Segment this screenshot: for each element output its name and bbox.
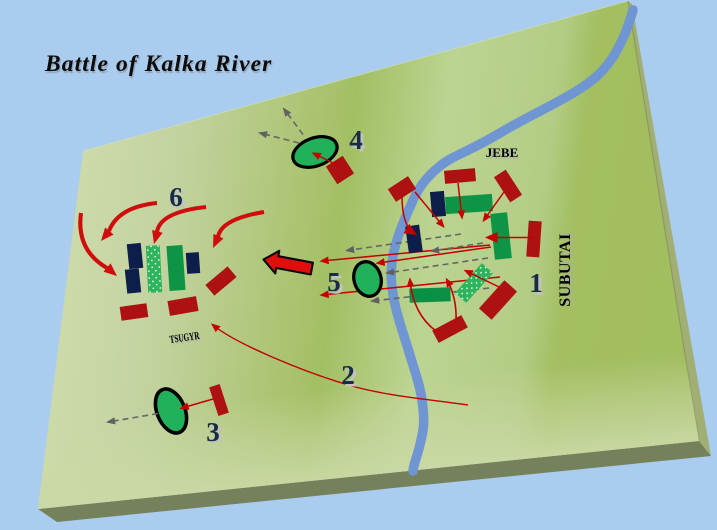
svg-text:3: 3 xyxy=(206,417,220,447)
svg-text:4: 4 xyxy=(349,125,363,155)
svg-text:SUBUTAI: SUBUTAI xyxy=(557,233,574,306)
svg-text:Battle of Kalka River: Battle of Kalka River xyxy=(44,51,272,77)
svg-text:6: 6 xyxy=(169,182,183,212)
svg-text:1: 1 xyxy=(529,268,543,298)
svg-text:2: 2 xyxy=(341,360,355,390)
svg-text:JEBE: JEBE xyxy=(486,145,519,160)
svg-text:5: 5 xyxy=(327,267,341,297)
